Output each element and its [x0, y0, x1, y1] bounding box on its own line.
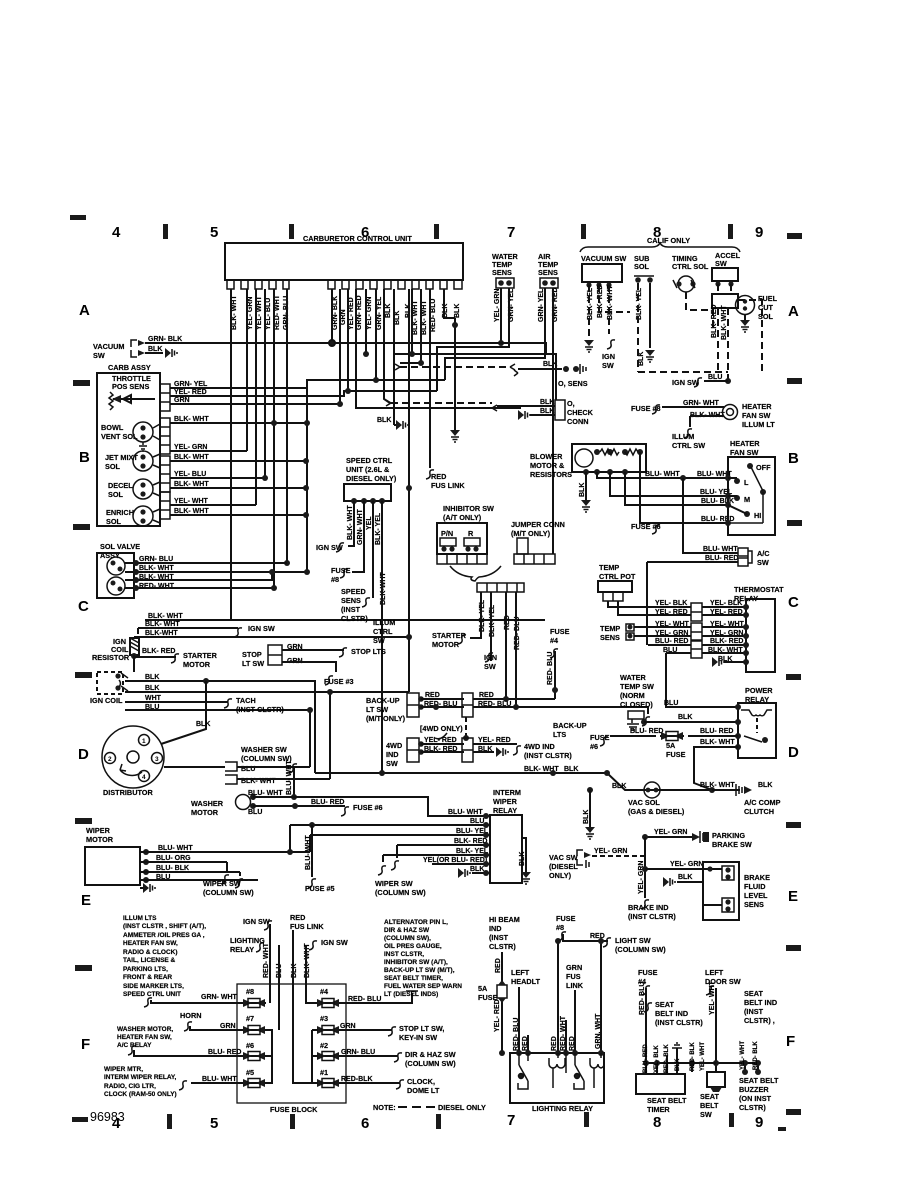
svg-text:B: B: [788, 450, 799, 467]
svg-text:GRN: GRN: [340, 1023, 356, 1030]
svg-text:BLK: BLK: [519, 852, 526, 866]
svg-text:1: 1: [142, 738, 146, 745]
svg-text:DOME LT: DOME LT: [407, 1086, 440, 1095]
svg-text:IGN: IGN: [602, 352, 615, 361]
svg-text:SOL: SOL: [105, 462, 121, 471]
svg-text:BELT IND: BELT IND: [655, 1009, 688, 1018]
svg-text:BLU- ORG: BLU- ORG: [156, 855, 191, 862]
svg-text:LEVEL: LEVEL: [744, 891, 768, 900]
svg-text:HI: HI: [754, 511, 761, 520]
svg-text:SOL: SOL: [758, 312, 774, 321]
svg-text:CLUTCH: CLUTCH: [744, 807, 774, 816]
svg-text:BLU- RED: BLU- RED: [655, 638, 688, 645]
svg-text:SEAT: SEAT: [744, 989, 763, 998]
svg-text:A: A: [79, 302, 90, 319]
svg-text:LT SW: LT SW: [242, 659, 264, 668]
svg-text:SPEED CTRL UNIT: SPEED CTRL UNIT: [123, 991, 181, 998]
svg-text:RED- BLU: RED- BLU: [430, 299, 437, 332]
svg-text:WATER: WATER: [620, 673, 647, 682]
svg-text:RED- BLU: RED- BLU: [513, 1018, 520, 1051]
svg-text:(COLUMN SW): (COLUMN SW): [203, 888, 254, 897]
svg-text:YEL- BLK: YEL- BLK: [655, 600, 687, 607]
svg-text:BLK: BLK: [612, 783, 626, 790]
svg-text:SEAT: SEAT: [655, 1000, 674, 1009]
svg-text:GRN: GRN: [340, 309, 347, 325]
svg-text:SPEED: SPEED: [341, 587, 366, 596]
svg-text:BLU- RED: BLU- RED: [700, 728, 733, 735]
svg-text:TIMER: TIMER: [647, 1105, 670, 1114]
svg-text:FUSE #5: FUSE #5: [305, 884, 335, 893]
svg-text:BLK- WHT: BLK- WHT: [700, 782, 735, 789]
svg-text:A: A: [788, 303, 799, 320]
svg-text:VACUUM: VACUUM: [93, 342, 124, 351]
svg-text:NOTE:: NOTE:: [373, 1103, 396, 1112]
svg-text:5: 5: [210, 224, 218, 241]
svg-text:JUMPER CONN: JUMPER CONN: [511, 520, 565, 529]
svg-text:POS SENS: POS SENS: [112, 382, 149, 391]
svg-text:RESISTOR: RESISTOR: [92, 653, 130, 662]
svg-text:YEL- RED: YEL- RED: [655, 609, 688, 616]
svg-text:WIPER: WIPER: [86, 826, 111, 835]
svg-text:CUT: CUT: [758, 303, 774, 312]
svg-text:FUSE #8: FUSE #8: [631, 404, 661, 413]
svg-text:HEATER FAN SW,: HEATER FAN SW,: [117, 1034, 172, 1041]
svg-text:BLU- WHT: BLU- WHT: [248, 790, 283, 797]
svg-text:YEL- GRN: YEL- GRN: [670, 861, 703, 868]
svg-text:BLU- WHT: BLU- WHT: [448, 809, 483, 816]
svg-text:BLK: BLK: [377, 417, 391, 424]
svg-text:(INST CLSTR , SHIFT (A/T),: (INST CLSTR , SHIFT (A/T),: [123, 923, 206, 930]
svg-text:GRN. WHT: GRN. WHT: [595, 1013, 602, 1049]
svg-text:LEFT: LEFT: [705, 968, 724, 977]
svg-text:YEL- WHT: YEL- WHT: [700, 1042, 706, 1071]
svg-text:YEL(OR BLU- RED): YEL(OR BLU- RED): [423, 857, 487, 864]
svg-text:RED: RED: [431, 472, 446, 481]
svg-text:SEAT BELT TIMER,: SEAT BELT TIMER,: [384, 975, 443, 982]
svg-text:RED: RED: [479, 692, 494, 699]
svg-text:IGN SW: IGN SW: [321, 938, 348, 947]
svg-text:HI BEAM: HI BEAM: [489, 915, 520, 924]
svg-text:DECEL: DECEL: [108, 481, 133, 490]
svg-text:MOTOR: MOTOR: [432, 640, 460, 649]
svg-text:(COLUMN SW): (COLUMN SW): [615, 945, 666, 954]
svg-text:VAC SW: VAC SW: [549, 853, 578, 862]
svg-text:LIGHTING RELAY: LIGHTING RELAY: [532, 1104, 593, 1113]
svg-text:WIPER SW: WIPER SW: [375, 879, 413, 888]
svg-text:YEL- BLU: YEL- BLU: [265, 298, 272, 330]
svg-text:BLK- WHT: BLK- WHT: [347, 505, 354, 540]
svg-text:FUSE: FUSE: [550, 627, 570, 636]
svg-text:YEL- WHT: YEL- WHT: [174, 498, 209, 505]
svg-text:BLU: BLU: [664, 700, 678, 707]
svg-text:RED- BLU: RED- BLU: [639, 982, 646, 1015]
svg-text:BLU: BLU: [248, 809, 262, 816]
svg-text:BLU- RED: BLU- RED: [705, 555, 738, 562]
svg-text:VACUUM SW: VACUUM SW: [581, 254, 626, 263]
svg-text:#1: #1: [320, 1068, 328, 1077]
svg-text:(GAS & DIESEL): (GAS & DIESEL): [628, 807, 685, 816]
svg-text:RED: RED: [495, 958, 502, 973]
svg-text:BLU- WHT: BLU- WHT: [703, 546, 738, 553]
svg-text:(INST: (INST: [744, 1007, 764, 1016]
svg-text:O,: O,: [567, 399, 575, 408]
svg-text:E: E: [788, 888, 798, 905]
svg-text:CTRL SW: CTRL SW: [672, 441, 705, 450]
svg-text:CTRL SOL: CTRL SOL: [672, 262, 709, 271]
svg-text:(COLUMN SW): (COLUMN SW): [241, 754, 292, 763]
svg-text:SENS: SENS: [341, 596, 361, 605]
svg-text:LIGHTING: LIGHTING: [230, 936, 265, 945]
svg-text:BLU: BLU: [470, 818, 484, 825]
svg-text:ILLUM: ILLUM: [672, 432, 694, 441]
svg-text:RED- BLK: RED- BLK: [664, 1044, 670, 1073]
svg-text:(COLUMN SW): (COLUMN SW): [405, 1059, 456, 1068]
svg-text:BLK-WHT: BLK-WHT: [145, 630, 178, 637]
svg-text:YEL- GRN: YEL- GRN: [654, 829, 687, 836]
svg-text:HEADLT: HEADLT: [511, 977, 541, 986]
svg-text:BELT: BELT: [700, 1101, 719, 1110]
svg-text:#8: #8: [556, 923, 564, 932]
svg-text:SW: SW: [373, 636, 385, 645]
svg-text:RED: RED: [290, 913, 305, 922]
svg-text:YEL- GRN: YEL- GRN: [247, 297, 254, 330]
svg-text:POWER: POWER: [745, 686, 773, 695]
svg-text:INST CLSTR,: INST CLSTR,: [384, 951, 424, 958]
svg-text:7: 7: [507, 1112, 515, 1129]
svg-text:FUEL: FUEL: [758, 294, 778, 303]
svg-text:INTERM WIPER RELAY,: INTERM WIPER RELAY,: [104, 1074, 177, 1081]
svg-text:BLK- RED: BLK- RED: [142, 648, 175, 655]
svg-text:BLU- WHT: BLU- WHT: [286, 760, 293, 795]
svg-text:[4WD ONLY): [4WD ONLY): [420, 724, 463, 733]
svg-text:SOL: SOL: [106, 517, 122, 526]
svg-text:BLK- WHT: BLK- WHT: [139, 565, 174, 572]
svg-text:(M/T ONLY): (M/T ONLY): [511, 529, 551, 538]
svg-text:RADIO, CIG LTR,: RADIO, CIG LTR,: [104, 1083, 156, 1090]
svg-text:LEFT: LEFT: [511, 968, 530, 977]
svg-text:TAIL, LICENSE &: TAIL, LICENSE &: [123, 957, 176, 964]
svg-text:KEY-IN SW: KEY-IN SW: [399, 1033, 437, 1042]
svg-text:BLK: BLK: [145, 674, 159, 681]
svg-text:9: 9: [755, 1114, 763, 1131]
svg-text:CARBURETOR CONTROL UNIT: CARBURETOR CONTROL UNIT: [303, 234, 412, 243]
svg-text:BUZZER: BUZZER: [739, 1085, 769, 1094]
svg-text:FUSE BLOCK: FUSE BLOCK: [270, 1105, 318, 1114]
svg-text:STOP LTS: STOP LTS: [351, 647, 386, 656]
svg-text:YEL- BLU: YEL- BLU: [174, 471, 206, 478]
svg-text:#7: #7: [246, 1014, 254, 1023]
svg-text:ILLUM LT: ILLUM LT: [742, 420, 775, 429]
svg-text:BACK-UP: BACK-UP: [366, 696, 400, 705]
svg-text:OIL PRES GAUGE,: OIL PRES GAUGE,: [384, 943, 442, 950]
svg-text:(INST CLSTR): (INST CLSTR): [628, 912, 676, 921]
svg-text:DIR & HAZ SW: DIR & HAZ SW: [405, 1050, 456, 1059]
svg-text:#6: #6: [246, 1041, 254, 1050]
svg-text:YEL- RED: YEL- RED: [494, 999, 501, 1032]
svg-text:INHIBITOR SW: INHIBITOR SW: [443, 504, 494, 513]
svg-text:SW: SW: [602, 361, 614, 370]
svg-text:BACK-UP: BACK-UP: [553, 721, 587, 730]
svg-text:ILLUM: ILLUM: [373, 618, 395, 627]
svg-text:BLK: BLK: [454, 304, 461, 318]
svg-text:BLK: BLK: [678, 874, 692, 881]
svg-text:D: D: [788, 744, 799, 761]
svg-text:BLU- WHT: BLU- WHT: [202, 1076, 237, 1083]
svg-text:WHT: WHT: [145, 695, 162, 702]
svg-text:A/C: A/C: [757, 549, 770, 558]
svg-text:BLK- WHT: BLK- WHT: [174, 416, 209, 423]
svg-text:TEMP SW: TEMP SW: [620, 682, 654, 691]
svg-text:BLK- WHT: BLK- WHT: [148, 613, 183, 620]
svg-text:RELAY: RELAY: [230, 945, 254, 954]
svg-text:YEL- WHT: YEL- WHT: [709, 980, 716, 1015]
svg-text:BLK: BLK: [145, 685, 159, 692]
svg-text:DISTRIBUTOR: DISTRIBUTOR: [103, 788, 153, 797]
svg-text:4WD IND: 4WD IND: [524, 742, 555, 751]
svg-text:BRAKE SW: BRAKE SW: [712, 840, 752, 849]
svg-text:9: 9: [755, 224, 763, 241]
svg-text:CLSTR): CLSTR): [341, 614, 368, 623]
svg-text:FUSE #3: FUSE #3: [324, 677, 354, 686]
svg-text:BLK- RED: BLK- RED: [454, 838, 487, 845]
svg-text:5A: 5A: [666, 741, 676, 750]
svg-text:(NORM: (NORM: [620, 691, 645, 700]
svg-text:YEL- GRN: YEL- GRN: [594, 848, 627, 855]
svg-text:BLU- WHT: BLU- WHT: [158, 845, 193, 852]
svg-text:SENS: SENS: [744, 900, 764, 909]
svg-text:BRAKE: BRAKE: [744, 873, 770, 882]
svg-text:YEL- BLK: YEL- BLK: [710, 600, 742, 607]
svg-text:CHECK: CHECK: [567, 408, 594, 417]
svg-text:CLSTR): CLSTR): [489, 942, 516, 951]
svg-text:A/C COMP: A/C COMP: [744, 798, 781, 807]
svg-text:CLOCK,: CLOCK,: [407, 1077, 435, 1086]
svg-text:(A/T ONLY): (A/T ONLY): [443, 513, 482, 522]
svg-text:ALTERNATOR PIN L,: ALTERNATOR PIN L,: [384, 919, 448, 926]
svg-text:BLK- WHT: BLK- WHT: [174, 508, 209, 515]
svg-text:LIGHT SW: LIGHT SW: [615, 936, 651, 945]
svg-text:BLU- RED: BLU- RED: [643, 1044, 649, 1073]
svg-text:4: 4: [142, 774, 146, 781]
svg-text:FUS LINK: FUS LINK: [290, 922, 324, 931]
svg-text:GRN- BLK: GRN- BLK: [148, 336, 182, 343]
svg-text:WIPER: WIPER: [493, 797, 518, 806]
svg-text:SOL VALVE: SOL VALVE: [100, 542, 140, 551]
svg-text:FUSE #6: FUSE #6: [631, 522, 661, 531]
svg-text:SENS: SENS: [492, 268, 512, 277]
svg-text:RED- WHT: RED- WHT: [263, 942, 270, 978]
svg-text:SEAT: SEAT: [700, 1092, 719, 1101]
svg-text:BLK- WHT: BLK- WHT: [421, 300, 428, 335]
svg-text:GRN: GRN: [220, 1023, 236, 1030]
svg-text:IGN: IGN: [484, 653, 497, 662]
svg-text:CARB ASSY: CARB ASSY: [108, 363, 151, 372]
svg-text:RELAY: RELAY: [493, 806, 517, 815]
svg-text:IGN SW: IGN SW: [243, 917, 270, 926]
svg-text:A/C RELAY: A/C RELAY: [117, 1042, 152, 1049]
svg-text:BLK- YEL: BLK- YEL: [587, 287, 594, 320]
svg-text:STOP: STOP: [242, 650, 262, 659]
svg-text:5: 5: [210, 1115, 218, 1132]
svg-text:BLOWER: BLOWER: [530, 452, 563, 461]
svg-text:LTS: LTS: [553, 730, 566, 739]
svg-text:(COLUMN SW): (COLUMN SW): [375, 888, 426, 897]
svg-text:BLU: BLU: [708, 374, 722, 381]
svg-text:YEL- GRN: YEL- GRN: [366, 297, 373, 330]
svg-text:FUSE: FUSE: [556, 914, 576, 923]
svg-text:IGN SW: IGN SW: [672, 378, 699, 387]
svg-text:MOTOR: MOTOR: [191, 808, 219, 817]
svg-text:BELT IND: BELT IND: [744, 998, 777, 1007]
svg-text:#5: #5: [246, 1068, 254, 1077]
svg-text:BLU- RED: BLU- RED: [311, 799, 344, 806]
svg-text:YEL- BLK: YEL- BLK: [654, 1045, 660, 1073]
svg-text:IGN SW: IGN SW: [316, 543, 343, 552]
svg-text:BLK: BLK: [758, 782, 772, 789]
svg-text:GRN- RED: GRN- RED: [356, 295, 363, 330]
svg-text:YEL- GRN: YEL- GRN: [638, 861, 645, 894]
svg-text:(DIESEL: (DIESEL: [549, 862, 578, 871]
svg-text:BLK: BLK: [196, 721, 210, 728]
svg-text:RED: RED: [522, 1036, 529, 1051]
svg-text:SW: SW: [757, 558, 769, 567]
svg-text:HEATER FAN SW,: HEATER FAN SW,: [123, 940, 178, 947]
svg-text:SEAT BELT: SEAT BELT: [647, 1096, 687, 1105]
svg-text:CLOCK (RAM-50 ONLY): CLOCK (RAM-50 ONLY): [104, 1091, 177, 1098]
svg-text:SPEED CTRL: SPEED CTRL: [346, 456, 393, 465]
svg-text:#2: #2: [320, 1041, 328, 1050]
svg-text:GRN- BLK: GRN- BLK: [332, 296, 339, 330]
svg-text:#4: #4: [550, 636, 559, 645]
svg-text:FAN SW: FAN SW: [730, 448, 758, 457]
svg-text:(INST: (INST: [341, 605, 361, 614]
svg-text:TEMP: TEMP: [599, 563, 619, 572]
svg-text:BOWL: BOWL: [101, 423, 124, 432]
svg-text:IND: IND: [386, 750, 399, 759]
svg-text:BLK- YEL: BLK- YEL: [375, 512, 382, 545]
svg-text:SENS: SENS: [538, 268, 558, 277]
svg-text:LT (DIESEL INDS): LT (DIESEL INDS): [384, 991, 438, 998]
svg-text:RED- WHT: RED- WHT: [274, 294, 281, 330]
svg-text:FUSE: FUSE: [590, 733, 610, 742]
svg-text:HORN: HORN: [180, 1011, 202, 1020]
svg-text:RED-BLK: RED-BLK: [341, 1076, 373, 1083]
svg-text:#8: #8: [246, 987, 254, 996]
svg-text:RED: RED: [425, 692, 440, 699]
svg-text:96983: 96983: [90, 1110, 125, 1124]
svg-text:E: E: [81, 892, 91, 909]
svg-text:SOL: SOL: [108, 490, 124, 499]
svg-text:WASHER MOTOR,: WASHER MOTOR,: [117, 1026, 173, 1033]
svg-text:5A: 5A: [478, 984, 488, 993]
svg-text:GRN: GRN: [174, 397, 190, 404]
svg-text:DIESEL ONLY): DIESEL ONLY): [346, 474, 397, 483]
svg-text:DIESEL ONLY: DIESEL ONLY: [438, 1103, 486, 1112]
svg-text:SW: SW: [715, 259, 727, 268]
svg-text:TACH: TACH: [236, 696, 256, 705]
svg-text:#8: #8: [331, 575, 339, 584]
svg-text:BLK: BLK: [470, 866, 484, 873]
svg-text:#6: #6: [590, 742, 598, 751]
svg-text:F: F: [786, 1033, 795, 1050]
svg-text:O, SENS: O, SENS: [558, 379, 588, 388]
svg-text:YEL- GRN: YEL- GRN: [494, 289, 501, 322]
svg-text:BACK-UP LT SW (M/T),: BACK-UP LT SW (M/T),: [384, 967, 455, 974]
svg-text:FRONT & REAR: FRONT & REAR: [123, 974, 172, 981]
svg-text:F: F: [81, 1036, 90, 1053]
svg-text:BLU- RED: BLU- RED: [208, 1049, 241, 1056]
svg-text:INHIBITOR SW (A/T),: INHIBITOR SW (A/T),: [384, 959, 448, 966]
svg-text:(M/T ONLY): (M/T ONLY): [366, 714, 406, 723]
svg-text:GRN- WHT: GRN- WHT: [357, 509, 364, 545]
svg-text:CTRL POT: CTRL POT: [599, 572, 636, 581]
svg-text:CONN: CONN: [567, 417, 589, 426]
svg-text:CLOSED): CLOSED): [620, 700, 653, 709]
svg-text:BLK- WHT: BLK- WHT: [174, 481, 209, 488]
svg-text:MOTOR: MOTOR: [183, 660, 211, 669]
svg-text:FUEL WATER SEP WARN: FUEL WATER SEP WARN: [384, 983, 462, 990]
svg-text:3: 3: [155, 756, 159, 763]
svg-text:GRN- WHT: GRN- WHT: [683, 400, 719, 407]
svg-text:4WD: 4WD: [386, 741, 402, 750]
svg-text:GRN- BLU: GRN- BLU: [341, 1049, 375, 1056]
svg-text:(ON INST: (ON INST: [739, 1094, 772, 1103]
svg-text:RED: RED: [569, 1036, 576, 1051]
svg-text:UNIT (2.6L &: UNIT (2.6L &: [346, 465, 390, 474]
svg-text:SEAT BELT: SEAT BELT: [739, 1076, 779, 1085]
svg-text:WASHER: WASHER: [191, 799, 224, 808]
svg-text:FLUID: FLUID: [744, 882, 765, 891]
svg-text:SW: SW: [386, 759, 398, 768]
svg-text:ONLY): ONLY): [549, 871, 572, 880]
svg-text:FUSE #6: FUSE #6: [353, 803, 383, 812]
svg-text:THERMOSTAT: THERMOSTAT: [734, 585, 784, 594]
svg-text:RESISTORS: RESISTORS: [530, 470, 572, 479]
svg-text:AMMETER /OIL PRES GA ,: AMMETER /OIL PRES GA ,: [123, 932, 205, 939]
svg-text:CALIF ONLY: CALIF ONLY: [647, 236, 690, 245]
svg-text:L: L: [744, 478, 749, 487]
svg-text:LINK: LINK: [566, 981, 584, 990]
svg-text:FUSE: FUSE: [666, 750, 686, 759]
svg-text:YEL- RED: YEL- RED: [348, 297, 355, 330]
svg-text:BLK: BLK: [148, 346, 162, 353]
svg-text:FUSE: FUSE: [331, 566, 351, 575]
svg-text:BLK: BLK: [564, 766, 578, 773]
svg-text:8: 8: [653, 1114, 661, 1131]
svg-text:BLK: BLK: [385, 304, 392, 318]
svg-text:BLK: BLK: [583, 810, 590, 824]
svg-text:(INST: (INST: [489, 933, 509, 942]
svg-text:GRN- YEL: GRN- YEL: [538, 288, 545, 322]
svg-text:HEATER: HEATER: [730, 439, 760, 448]
svg-text:YEL- RED: YEL- RED: [174, 389, 207, 396]
svg-text:GRN- YEL: GRN- YEL: [376, 296, 383, 330]
svg-text:BLK: BLK: [675, 1058, 681, 1071]
svg-text:IND: IND: [489, 924, 502, 933]
svg-text:DIR & HAZ SW: DIR & HAZ SW: [384, 927, 430, 934]
svg-text:RED- BLU: RED- BLU: [348, 996, 381, 1003]
svg-text:SOL: SOL: [634, 262, 650, 271]
svg-text:CLSTR) ,: CLSTR) ,: [744, 1016, 775, 1025]
svg-text:(INST CLSTR): (INST CLSTR): [236, 705, 284, 714]
svg-text:BLU- RED: BLU- RED: [630, 728, 663, 735]
svg-text:7: 7: [507, 224, 515, 241]
svg-text:YEL- RED: YEL- RED: [478, 737, 511, 744]
svg-text:P/N: P/N: [441, 529, 453, 538]
svg-text:YEL- GRN: YEL- GRN: [174, 444, 207, 451]
svg-text:RED: RED: [551, 1036, 558, 1051]
svg-text:BLU- WHT: BLU- WHT: [305, 835, 312, 870]
